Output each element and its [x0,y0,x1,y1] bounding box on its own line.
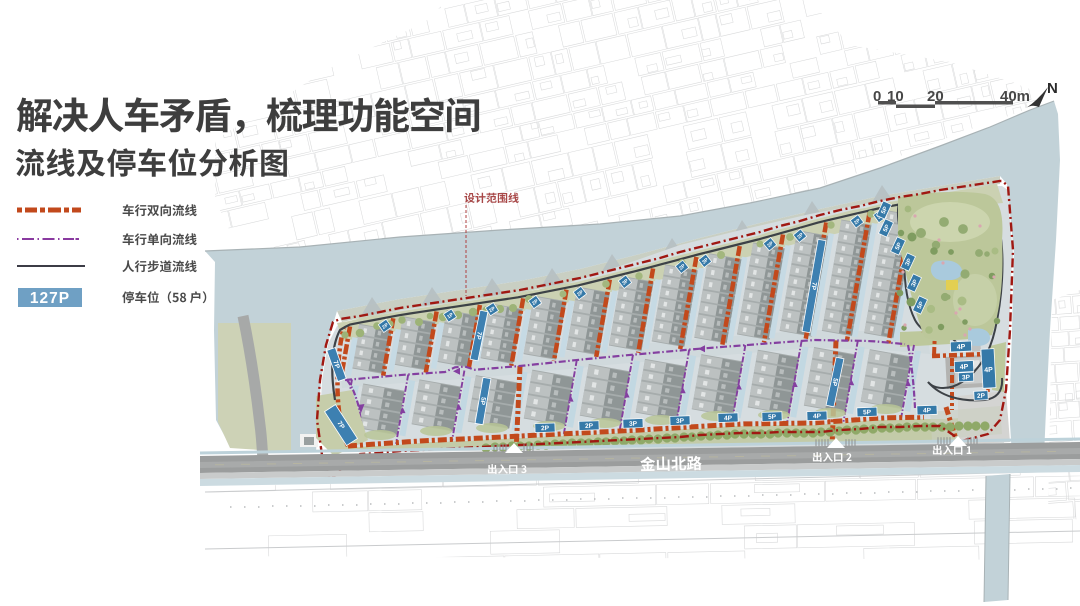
svg-text:4P: 4P [960,364,969,371]
svg-text:4P: 4P [984,367,993,374]
svg-text:N: N [1047,80,1058,97]
svg-text:127P: 127P [30,290,70,307]
svg-text:3P: 3P [676,418,685,425]
svg-text:3P: 3P [629,421,638,428]
svg-text:5P: 5P [863,409,872,416]
svg-text:2P: 2P [585,423,594,430]
svg-text:4P: 4P [813,413,822,420]
svg-text:2P: 2P [541,425,550,432]
svg-text:4P: 4P [923,407,932,414]
svg-text:2P: 2P [977,393,986,400]
svg-text:4P: 4P [724,415,733,422]
svg-text:4P: 4P [957,344,966,351]
svg-text:5P: 5P [768,414,777,421]
svg-text:3P: 3P [962,374,971,381]
